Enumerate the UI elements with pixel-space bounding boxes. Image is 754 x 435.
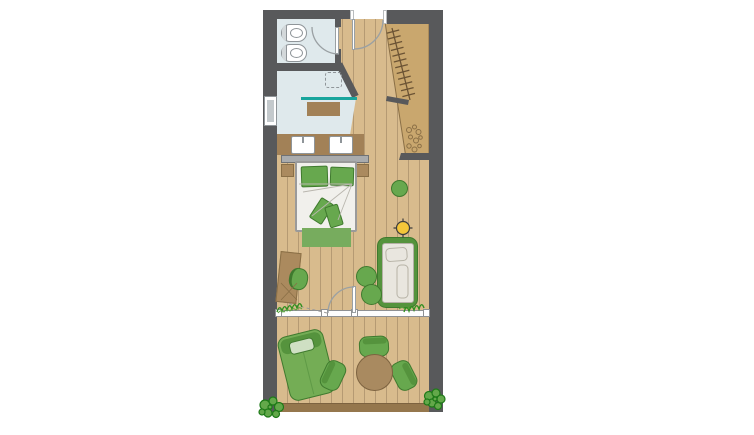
ceiling-light-symbol: [394, 219, 413, 238]
terrace-door-swing: [328, 287, 354, 313]
daybed-cushions: [386, 247, 408, 298]
wc-door-swing: [312, 27, 339, 54]
entrance-door-swing: [354, 20, 383, 49]
floor-plan-canvas: [0, 0, 754, 435]
desk-lines: [281, 283, 297, 300]
bush-bottom-right: [424, 389, 445, 410]
duvet-fold-lines: [299, 184, 352, 220]
plant-right: [399, 305, 424, 312]
plant-left: [277, 304, 302, 313]
bush-bottom-left: [259, 397, 284, 418]
plan-overlay: [0, 0, 754, 435]
